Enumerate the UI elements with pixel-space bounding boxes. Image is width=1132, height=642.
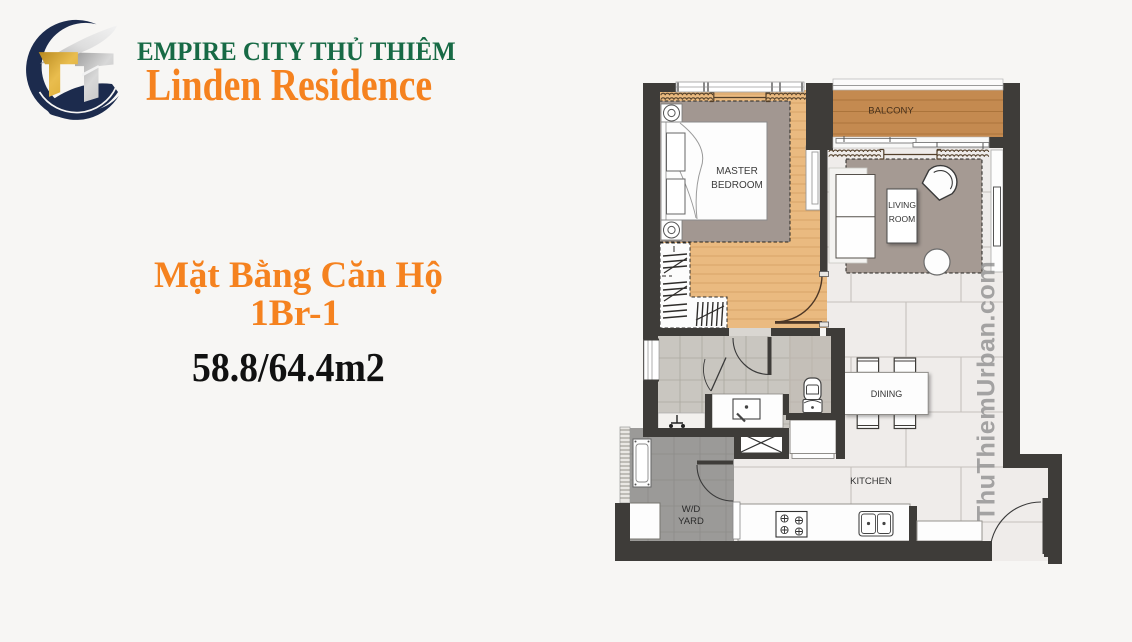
svg-text:ROOM: ROOM <box>889 214 915 224</box>
svg-text:KITCHEN: KITCHEN <box>850 476 892 487</box>
svg-text:DINING: DINING <box>871 389 903 399</box>
svg-text:MASTER: MASTER <box>716 166 758 177</box>
svg-text:LIVING: LIVING <box>888 200 916 210</box>
svg-text:W/D: W/D <box>682 504 701 515</box>
svg-text:YARD: YARD <box>678 516 704 527</box>
svg-text:BALCONY: BALCONY <box>868 106 914 117</box>
svg-text:BEDROOM: BEDROOM <box>711 180 763 191</box>
